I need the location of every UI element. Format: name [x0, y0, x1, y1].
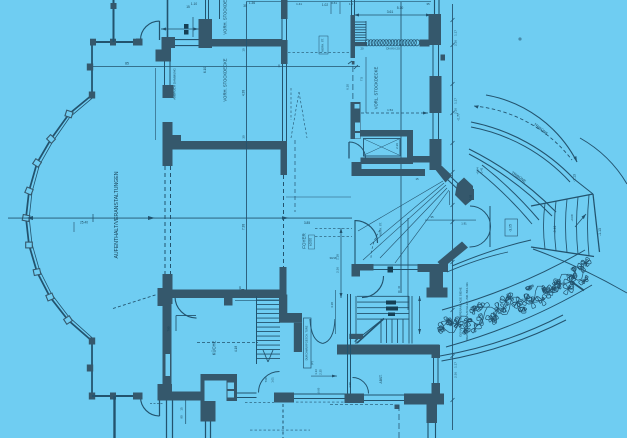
svg-text:-0.05: -0.05 [469, 194, 473, 201]
svg-text:1.17: 1.17 [454, 362, 458, 368]
svg-text:1.98: 1.98 [348, 382, 352, 388]
svg-text:90: 90 [180, 415, 184, 419]
svg-text:VORH. ST.: VORH. ST. [379, 222, 383, 236]
svg-text:15: 15 [186, 5, 190, 9]
svg-text:30: 30 [242, 135, 246, 139]
svg-text:-1.13: -1.13 [598, 228, 602, 236]
svg-text:3.85: 3.85 [304, 221, 310, 225]
svg-text:3.61: 3.61 [331, 1, 337, 5]
svg-text:15: 15 [415, 177, 419, 181]
svg-text:VORH. STOCKDECKE: VORH. STOCKDECKE [223, 0, 228, 35]
svg-text:2.36: 2.36 [454, 372, 458, 378]
svg-text:+0.08: +0.08 [570, 214, 574, 222]
svg-text:±0.00: ±0.00 [309, 238, 313, 246]
svg-text:AUFENTHALT/VERANSTALTUNGEN: AUFENTHALT/VERANSTALTUNGEN [114, 171, 120, 258]
svg-text:25.40: 25.40 [80, 221, 88, 225]
svg-text:1.10: 1.10 [191, 2, 197, 6]
svg-text:-0.41: -0.41 [553, 226, 557, 234]
svg-text:6.10: 6.10 [203, 67, 207, 73]
svg-text:T90: T90 [167, 326, 171, 332]
svg-text:±0.00: ±0.00 [317, 387, 321, 394]
svg-text:(P): (P) [310, 361, 314, 365]
svg-text:1.36: 1.36 [249, 1, 255, 5]
svg-text:6.10: 6.10 [346, 84, 350, 90]
svg-text:10: 10 [277, 64, 281, 68]
svg-text:-1.13: -1.13 [573, 174, 577, 182]
svg-text:30/18: 30/18 [330, 256, 337, 260]
svg-text:FOYER: FOYER [302, 233, 307, 249]
svg-text:ABST.: ABST. [379, 374, 383, 383]
svg-text:1.54: 1.54 [387, 108, 393, 112]
svg-text:1.17: 1.17 [454, 30, 458, 36]
svg-text:15: 15 [180, 407, 184, 411]
svg-text:-0.77: -0.77 [457, 113, 461, 121]
svg-text:1.17: 1.17 [454, 98, 458, 104]
svg-text:85: 85 [125, 62, 129, 66]
svg-text:20: 20 [360, 47, 364, 51]
svg-text:2.36: 2.36 [454, 108, 458, 114]
svg-text:1.41: 1.41 [296, 2, 302, 6]
svg-text:7.5: 7.5 [360, 77, 364, 82]
svg-text:35: 35 [426, 2, 430, 6]
svg-text:-3.05: -3.05 [509, 224, 513, 232]
svg-text:95: 95 [430, 215, 434, 219]
svg-text:7.38: 7.38 [242, 224, 246, 230]
svg-text:2.36: 2.36 [454, 40, 458, 46]
svg-text:4.38: 4.38 [242, 90, 246, 96]
svg-text:1.91: 1.91 [461, 222, 467, 226]
svg-text:5.10: 5.10 [397, 6, 404, 10]
svg-text:GENAUE TREPPENANLAGE SIEHE: GENAUE TREPPENANLAGE SIEHE [459, 287, 463, 337]
svg-text:DURCHWURFGESCH. TÜRE: DURCHWURFGESCH. TÜRE [305, 325, 309, 360]
svg-text:1.13: 1.13 [314, 369, 318, 375]
svg-text:VORL. STOCKDECKE: VORL. STOCKDECKE [374, 67, 379, 110]
svg-text:10: 10 [242, 48, 246, 52]
svg-text:2.36: 2.36 [395, 143, 399, 149]
svg-text:30: 30 [238, 286, 242, 290]
svg-text:2.35: 2.35 [319, 369, 323, 375]
svg-text:4.18: 4.18 [330, 302, 334, 308]
svg-text:2.36: 2.36 [336, 267, 340, 273]
svg-text:4.18: 4.18 [234, 346, 238, 352]
svg-text:ANBRUCH DAMMUNG: ANBRUCH DAMMUNG [173, 68, 177, 100]
svg-text:VORH. STOCKDECKE: VORH. STOCKDECKE [223, 58, 228, 101]
svg-text:T30: T30 [264, 377, 268, 382]
svg-text:3.61: 3.61 [387, 10, 394, 14]
svg-text:1.02: 1.02 [322, 3, 328, 7]
svg-text:1.01: 1.01 [271, 377, 275, 383]
svg-text:VORH. ST.: VORH. ST. [321, 38, 325, 52]
svg-text:DN KN 20: DN KN 20 [386, 47, 400, 51]
